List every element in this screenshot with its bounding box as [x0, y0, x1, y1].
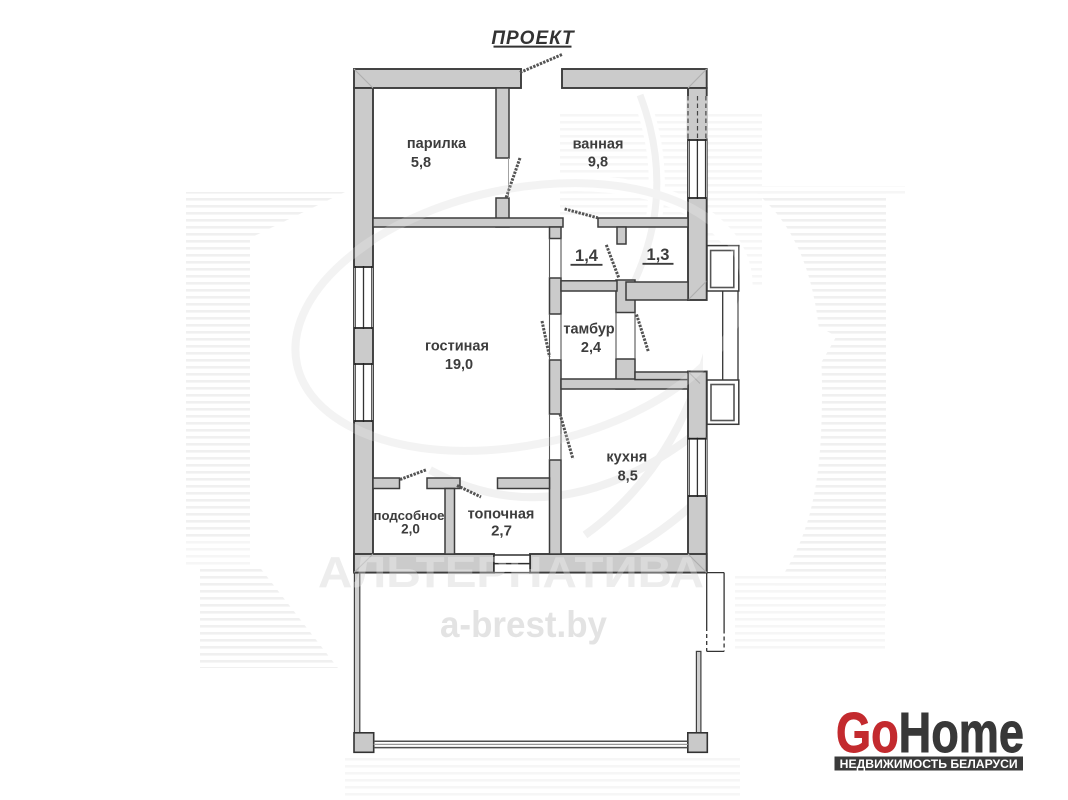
svg-text:5,8: 5,8: [411, 155, 431, 171]
svg-text:кухня: кухня: [606, 449, 647, 465]
svg-text:GoHome: GoHome: [836, 701, 1024, 765]
svg-text:2,0: 2,0: [401, 521, 420, 536]
svg-text:1,3: 1,3: [647, 246, 670, 264]
svg-text:тамбур: тамбур: [563, 321, 614, 337]
svg-text:АЛЬТЕРНАТИВА: АЛЬТЕРНАТИВА: [318, 548, 704, 597]
svg-text:19,0: 19,0: [445, 357, 473, 373]
svg-text:2,4: 2,4: [581, 340, 601, 356]
svg-text:9,8: 9,8: [588, 154, 608, 170]
svg-text:a-brest.by: a-brest.by: [440, 604, 607, 645]
svg-text:топочная: топочная: [468, 506, 535, 522]
svg-text:8,5: 8,5: [618, 468, 638, 484]
svg-text:парилка: парилка: [407, 136, 467, 152]
svg-text:ванная: ванная: [573, 136, 624, 152]
svg-text:1,4: 1,4: [575, 247, 599, 265]
svg-text:НЕДВИЖИМОСТЬ БЕЛАРУСИ: НЕДВИЖИМОСТЬ БЕЛАРУСИ: [840, 759, 1018, 771]
svg-text:гостиная: гостиная: [425, 338, 489, 354]
svg-text:2,7: 2,7: [491, 523, 512, 540]
